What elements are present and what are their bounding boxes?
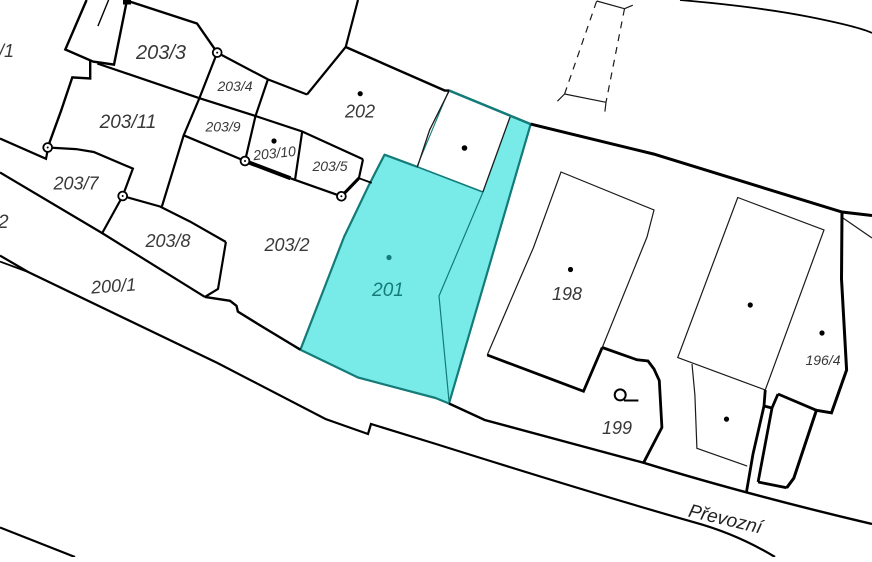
- svg-text:198: 198: [552, 284, 582, 304]
- svg-text:203/9: 203/9: [204, 119, 240, 135]
- svg-text:201: 201: [371, 280, 404, 301]
- svg-text:203/4: 203/4: [216, 78, 252, 94]
- svg-text:203/5: 203/5: [311, 158, 347, 174]
- svg-text:203/3: 203/3: [135, 42, 186, 64]
- svg-text:203/2: 203/2: [263, 235, 309, 255]
- svg-text:2: 2: [0, 212, 9, 233]
- svg-text:203/8: 203/8: [144, 231, 190, 251]
- svg-text:203/11: 203/11: [99, 112, 157, 133]
- svg-text:196/4: 196/4: [805, 352, 840, 368]
- svg-text:200/1: 200/1: [89, 274, 136, 297]
- svg-text:199: 199: [602, 418, 632, 438]
- svg-text:203/7: 203/7: [52, 174, 99, 194]
- svg-text:202: 202: [344, 102, 375, 122]
- svg-text:203/1: 203/1: [0, 41, 14, 61]
